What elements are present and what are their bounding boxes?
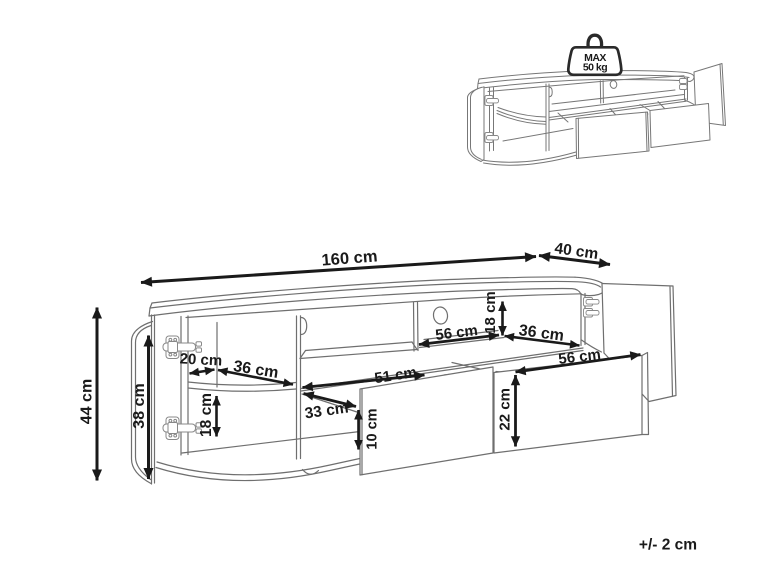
svg-text:+/- 2 cm: +/- 2 cm: [639, 537, 697, 554]
svg-text:36 cm: 36 cm: [518, 322, 565, 345]
svg-text:18 cm: 18 cm: [198, 393, 215, 437]
svg-text:20 cm: 20 cm: [179, 350, 222, 369]
svg-text:36 cm: 36 cm: [232, 358, 279, 382]
svg-text:22 cm: 22 cm: [497, 388, 514, 431]
svg-text:18 cm: 18 cm: [482, 291, 499, 334]
svg-text:33 cm: 33 cm: [304, 400, 350, 423]
svg-text:44 cm: 44 cm: [79, 379, 96, 424]
svg-text:38 cm: 38 cm: [131, 383, 148, 428]
svg-text:50 kg: 50 kg: [583, 62, 607, 74]
svg-text:10 cm: 10 cm: [365, 408, 381, 449]
